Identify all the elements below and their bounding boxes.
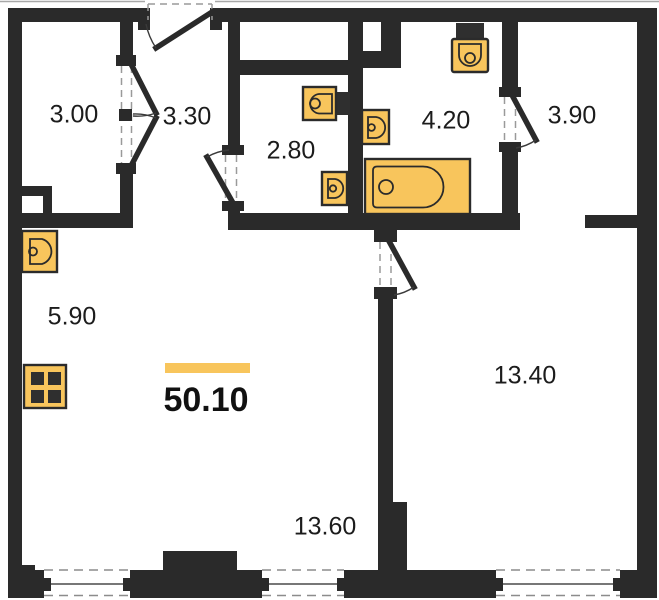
- area-label-bathroom: 4.20: [422, 109, 471, 134]
- wall-left: [8, 8, 22, 570]
- wall-right: [637, 8, 657, 598]
- window2-tab-left: [262, 578, 269, 591]
- wall-under-hall: [585, 215, 637, 228]
- window3-tab-right: [613, 578, 620, 591]
- window1-jamb-right: [130, 570, 142, 598]
- bedroom-door-jamb-bottom: [374, 287, 397, 299]
- wall-bottom-seg-3: [633, 570, 657, 598]
- wall-storage-hall-top: [120, 22, 133, 60]
- storage-door-leaf-bottom: [131, 118, 156, 166]
- wall-bottom-seg-2: [356, 570, 487, 598]
- entrance-door-leaf: [156, 12, 212, 48]
- bathroom-sink-icon: [362, 110, 389, 144]
- window1-jamb-left: [35, 570, 44, 598]
- area-label-kitchen: 5.90: [48, 305, 97, 330]
- wall-storage-hall-bottom: [120, 174, 133, 215]
- bedroom-door-jamb-top: [374, 230, 397, 242]
- window2-jamb-right: [344, 570, 356, 598]
- window1-tab-right: [123, 578, 130, 591]
- area-label-hall: 3.90: [548, 104, 597, 129]
- stove-icon: [24, 365, 66, 408]
- window3-jamb-right: [620, 570, 633, 598]
- bathroom-duct-hole: [363, 22, 381, 51]
- area-label-bedroom: 13.40: [494, 364, 557, 389]
- wall-wc-bathroom: [348, 22, 363, 228]
- toilet-icon: [452, 23, 488, 72]
- wall-bathroom-hall-bottom: [502, 152, 518, 230]
- wall-bottom-seg-1: [142, 570, 253, 598]
- window3-tab-left: [496, 578, 503, 591]
- kitchen-shaft-hole: [22, 196, 43, 213]
- wc-sink-icon: [303, 87, 350, 120]
- wall-bottom-left-block: [8, 565, 35, 598]
- wall-bottom-pier: [163, 551, 237, 570]
- wall-living-bedroom-base: [378, 502, 407, 570]
- bathtub-icon: [365, 159, 470, 214]
- area-label-entry-hall: 3.30: [163, 105, 212, 130]
- entrance-door-arc: [146, 24, 156, 48]
- total-area-label: 50.10: [163, 383, 248, 417]
- area-label-living-room: 13.60: [294, 515, 357, 540]
- wall-bathroom-hall-top: [502, 22, 518, 87]
- wall-living-bedroom: [378, 299, 393, 502]
- wall-under-wc-bathroom: [228, 213, 520, 230]
- floor-plan: 3.00 3.30 2.80 4.20 3.90 5.90 13.40 13.6…: [0, 0, 659, 600]
- wc-hand-basin-icon: [322, 172, 347, 205]
- wall-wc-shaft: [238, 60, 350, 75]
- area-label-storage: 3.00: [50, 103, 99, 128]
- wall-top-right: [215, 8, 657, 22]
- window3-jamb-left: [487, 570, 496, 598]
- bedroom-door-leaf: [390, 243, 414, 287]
- storage-door-meeting-block: [119, 109, 132, 121]
- kitchen-sink-icon: [22, 231, 57, 272]
- window2-tab-right: [337, 578, 344, 591]
- wall-top-left: [8, 8, 145, 22]
- total-area-accent-bar: [165, 363, 250, 373]
- wc-door-leaf: [207, 157, 233, 203]
- window1-tab-left: [44, 578, 51, 591]
- wall-hall-wc: [228, 22, 240, 147]
- storage-door-leaf-top: [131, 64, 156, 113]
- floor-plan-drawing: [0, 0, 659, 600]
- window2-jamb-left: [253, 570, 262, 598]
- area-label-wc: 2.80: [267, 139, 316, 164]
